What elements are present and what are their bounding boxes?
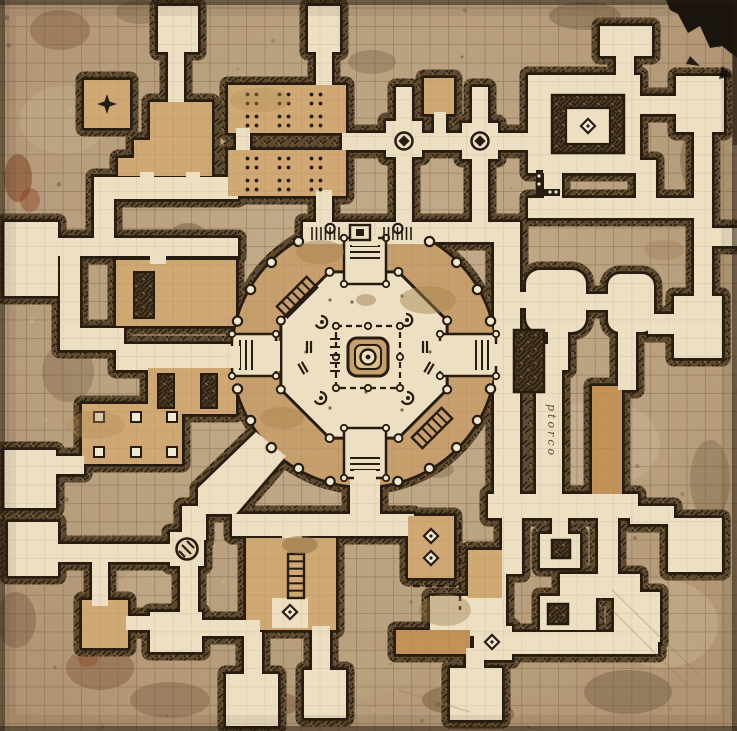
dungeon-map-canvas: ptorco [0, 0, 737, 731]
annotation-scribble: ptorco [545, 404, 558, 458]
dungeon-map-viewport: ptorco [0, 0, 737, 731]
handwritten-annotation: ptorco [545, 404, 558, 458]
stairs-icon [288, 554, 304, 598]
